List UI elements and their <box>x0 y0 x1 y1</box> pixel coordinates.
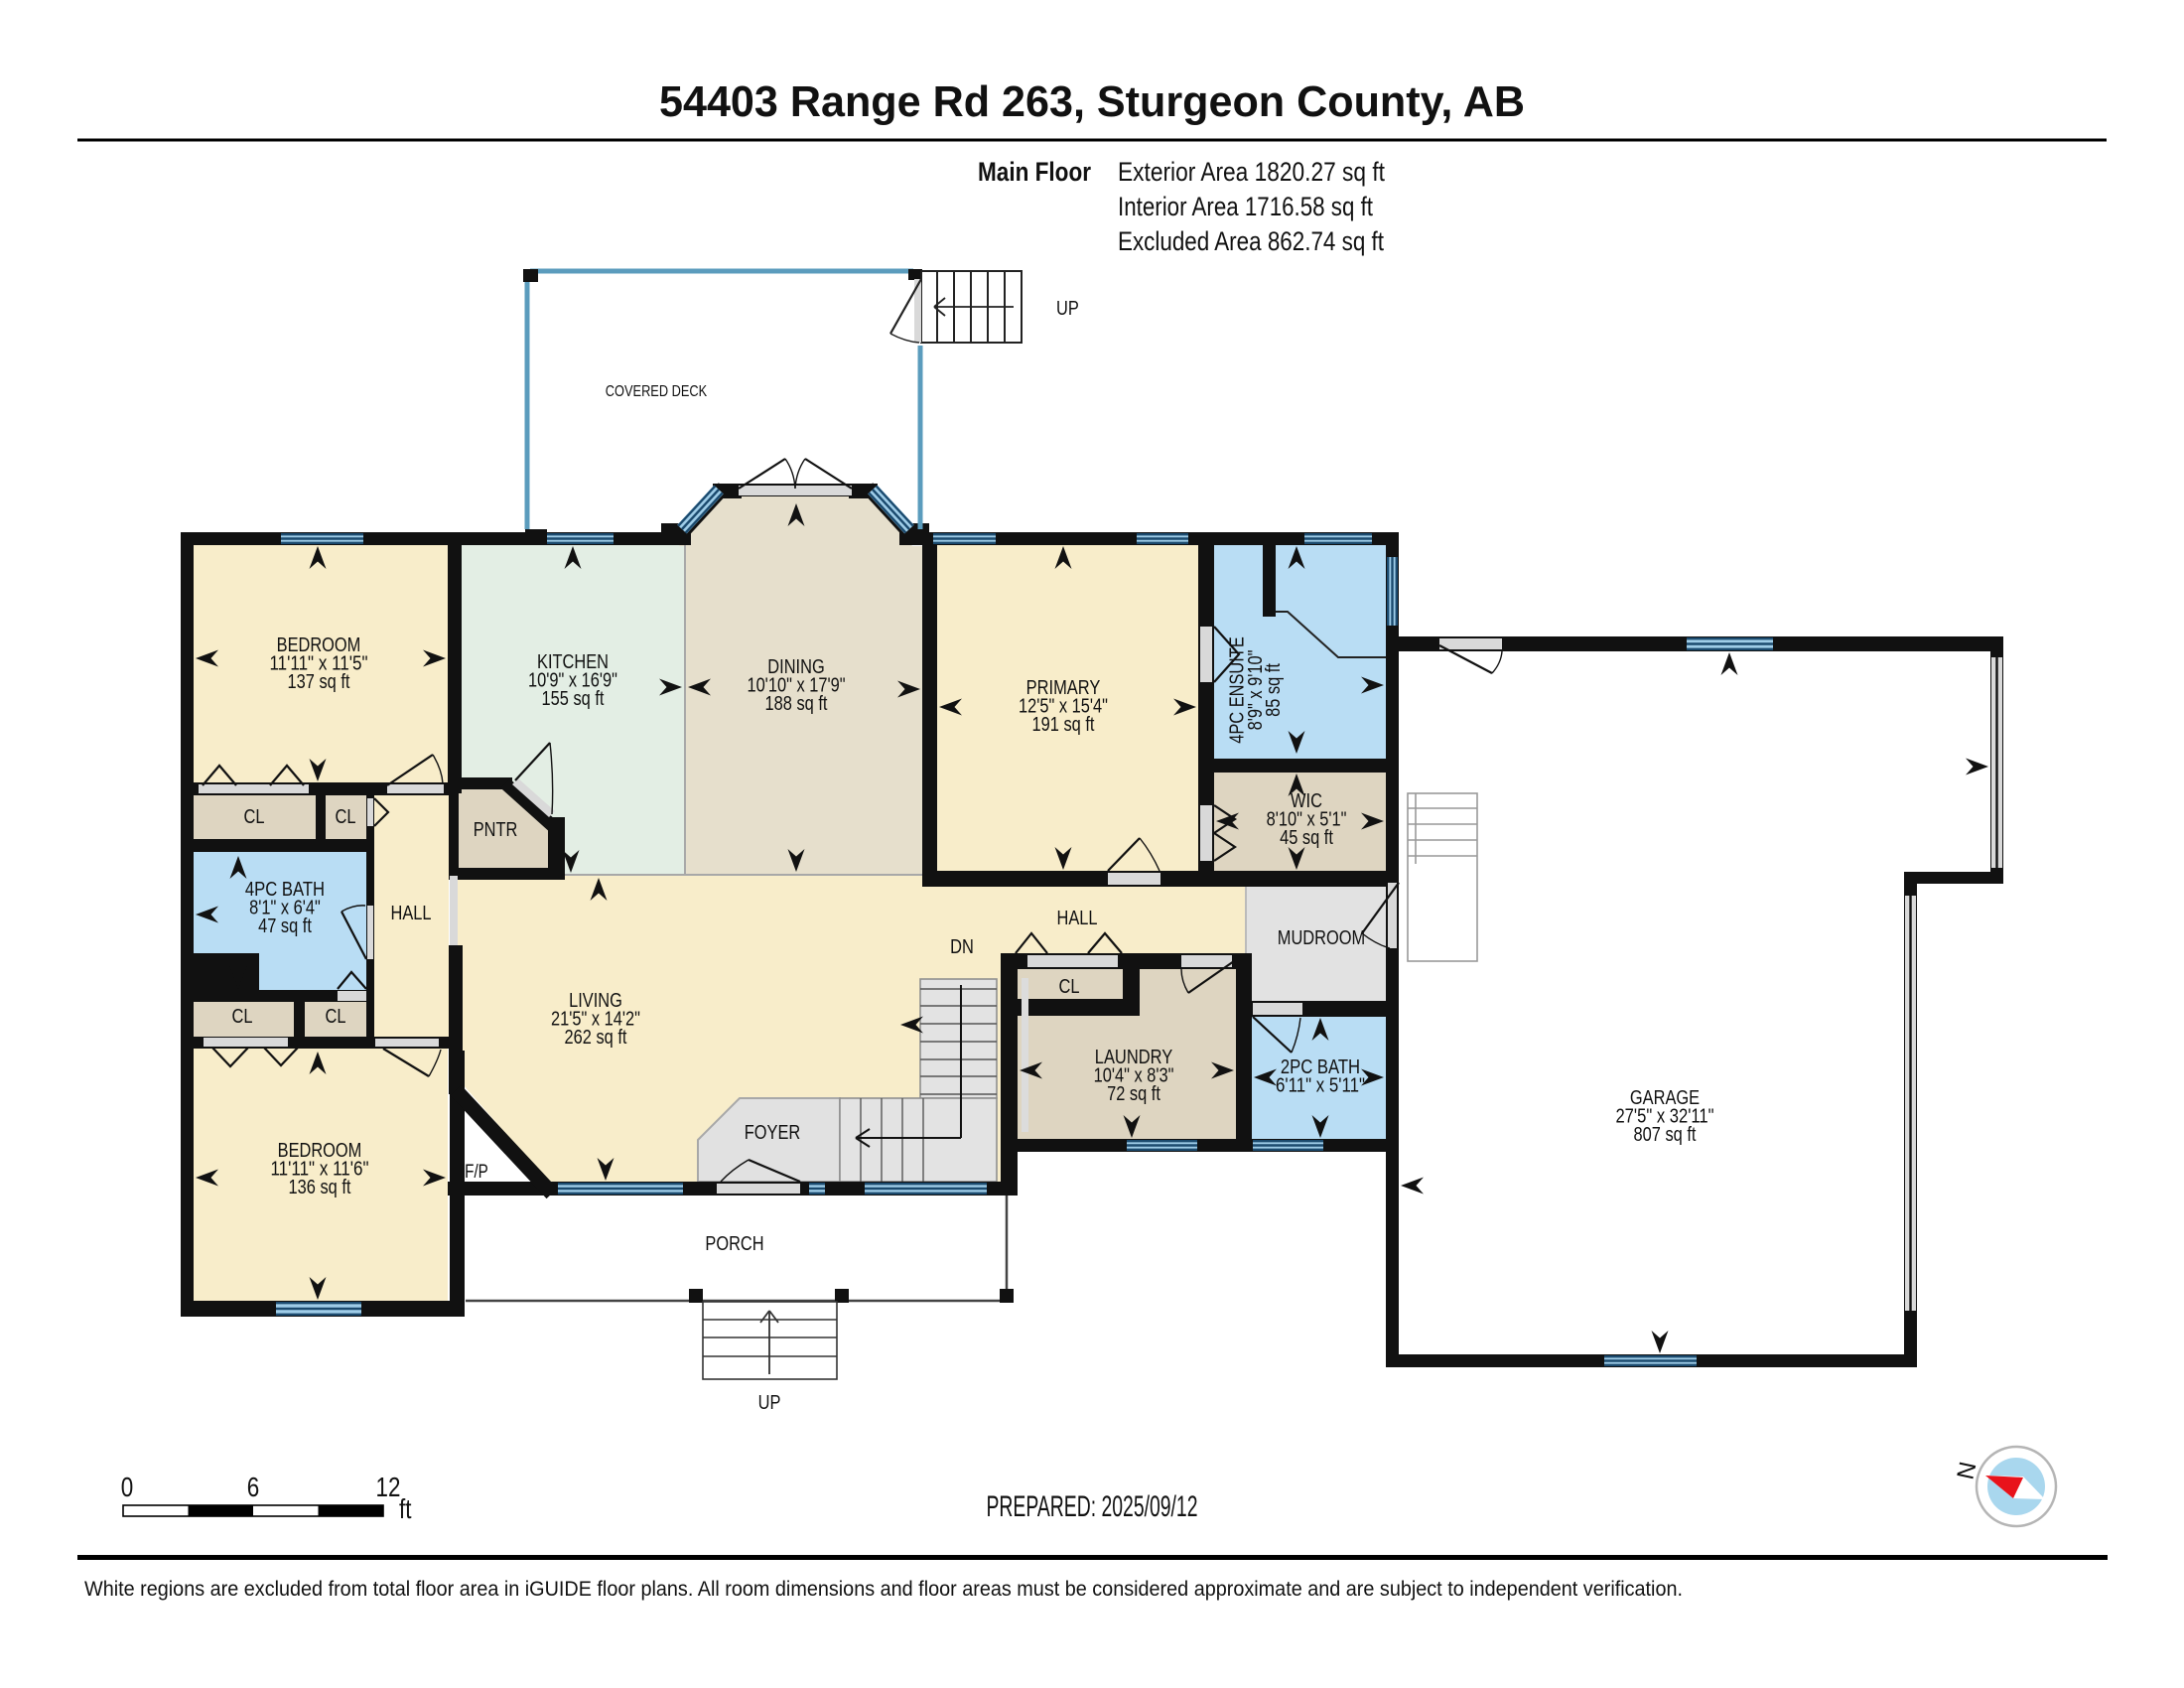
svg-text:COVERED DECK: COVERED DECK <box>606 383 708 400</box>
svg-text:MUDROOM: MUDROOM <box>1278 926 1365 949</box>
svg-text:CL: CL <box>326 1005 346 1028</box>
svg-text:262 sq ft: 262 sq ft <box>565 1026 627 1049</box>
svg-text:Excluded Area 862.74 sq ft: Excluded Area 862.74 sq ft <box>1118 226 1384 256</box>
svg-text:155 sq ft: 155 sq ft <box>542 687 605 710</box>
svg-text:12: 12 <box>376 1472 401 1502</box>
svg-text:PREPARED: 2025/09/12: PREPARED: 2025/09/12 <box>987 1490 1198 1523</box>
svg-text:CL: CL <box>1059 975 1080 998</box>
svg-text:F/P: F/P <box>465 1162 488 1183</box>
svg-text:47 sq ft: 47 sq ft <box>258 914 312 937</box>
svg-text:191 sq ft: 191 sq ft <box>1032 713 1095 736</box>
svg-text:UP: UP <box>1056 297 1079 320</box>
svg-text:PNTR: PNTR <box>474 818 518 841</box>
svg-text:6: 6 <box>247 1472 260 1502</box>
svg-text:CL: CL <box>336 805 356 828</box>
svg-text:72 sq ft: 72 sq ft <box>1107 1082 1160 1105</box>
svg-text:136 sq ft: 136 sq ft <box>289 1176 351 1198</box>
svg-text:188 sq ft: 188 sq ft <box>765 692 828 715</box>
svg-text:CL: CL <box>232 1005 253 1028</box>
svg-text:White regions are excluded fro: White regions are excluded from total fl… <box>84 1577 1683 1601</box>
svg-text:54403 Range Rd 263, Sturgeon C: 54403 Range Rd 263, Sturgeon County, AB <box>659 77 1525 126</box>
svg-text:6'11" x 5'11": 6'11" x 5'11" <box>1276 1073 1365 1096</box>
svg-text:0: 0 <box>121 1472 134 1502</box>
svg-text:HALL: HALL <box>391 902 432 924</box>
svg-text:Interior Area 1716.58 sq ft: Interior Area 1716.58 sq ft <box>1118 192 1373 221</box>
svg-text:ft: ft <box>399 1493 412 1524</box>
svg-text:FOYER: FOYER <box>745 1121 801 1144</box>
svg-text:Main Floor: Main Floor <box>978 157 1091 187</box>
svg-text:137 sq ft: 137 sq ft <box>288 670 350 693</box>
svg-text:PORCH: PORCH <box>705 1232 763 1255</box>
svg-text:85 sq ft: 85 sq ft <box>1262 663 1285 717</box>
svg-text:HALL: HALL <box>1057 907 1098 929</box>
svg-text:DN: DN <box>950 935 974 958</box>
svg-text:45 sq ft: 45 sq ft <box>1280 826 1333 849</box>
svg-text:CL: CL <box>244 805 265 828</box>
svg-text:Exterior Area 1820.27 sq ft: Exterior Area 1820.27 sq ft <box>1118 157 1385 187</box>
svg-text:807 sq ft: 807 sq ft <box>1634 1123 1697 1146</box>
svg-text:UP: UP <box>758 1391 781 1414</box>
